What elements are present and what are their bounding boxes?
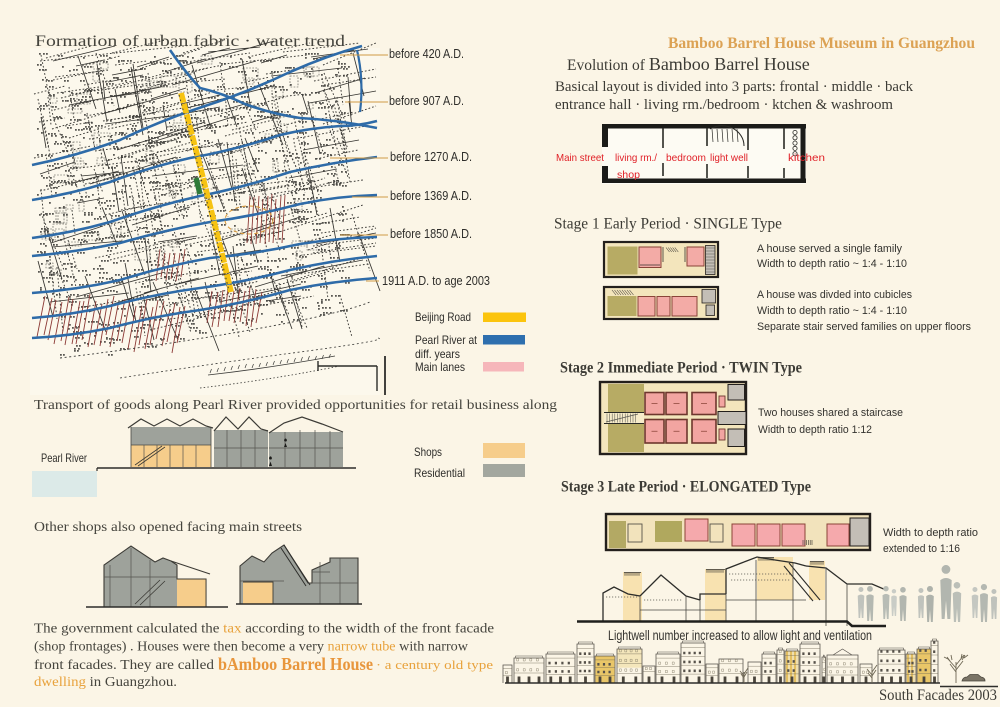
svg-text:Main lanes: Main lanes bbox=[415, 360, 465, 374]
svg-text:Width to depth ratio ~ 1:4 - 1: Width to depth ratio ~ 1:4 - 1:10 bbox=[757, 305, 907, 317]
svg-text:living rm./: living rm./ bbox=[615, 152, 657, 164]
svg-text:Transport of goods along Pearl: Transport of goods along Pearl River pro… bbox=[34, 398, 557, 413]
svg-text:Bamboo Barrel House Museum in: Bamboo Barrel House Museum in Guangzhou bbox=[668, 35, 975, 52]
svg-text:A house was divded into cubicl: A house was divded into cubicles bbox=[757, 289, 912, 301]
svg-text:· a century old type: · a century old type bbox=[376, 658, 494, 672]
svg-text:Other shops also opened facing: Other shops also opened facing main stre… bbox=[34, 520, 302, 535]
svg-text:Separate stair served families: Separate stair served families on upper … bbox=[757, 321, 971, 333]
svg-text:1911 A.D. to age 2003: 1911 A.D. to age 2003 bbox=[382, 273, 490, 288]
svg-text:Formation of urban fabric · wa: Formation of urban fabric · water trend bbox=[35, 33, 345, 50]
svg-text:Main street: Main street bbox=[556, 152, 604, 164]
svg-text:before 1850 A.D.: before 1850 A.D. bbox=[390, 226, 472, 241]
svg-text:Residential: Residential bbox=[414, 466, 465, 480]
svg-text:Evolution of Bamboo Barrel Hou: Evolution of Bamboo Barrel House bbox=[567, 54, 810, 74]
svg-text:bAmboo Barrel House: bAmboo Barrel House bbox=[218, 654, 373, 674]
svg-text:A house served a single famil: A house served a single family bbox=[757, 243, 903, 255]
svg-text:before 907 A.D.: before 907 A.D. bbox=[389, 93, 464, 108]
svg-text:extended to 1:16: extended to 1:16 bbox=[883, 543, 960, 555]
svg-text:light well: light well bbox=[710, 152, 748, 164]
svg-text:shop: shop bbox=[617, 169, 640, 181]
svg-text:dwelling in Guangzhou.: dwelling in Guangzhou. bbox=[34, 675, 177, 690]
svg-text:Shops: Shops bbox=[414, 445, 442, 459]
svg-text:kitchen: kitchen bbox=[788, 152, 825, 164]
svg-text:The government calculated the: The government calculated the tax accord… bbox=[34, 622, 494, 637]
svg-text:Two houses shared a staircase: Two houses shared a staircase bbox=[758, 407, 903, 419]
svg-text:diff. years: diff. years bbox=[415, 347, 460, 361]
svg-text:Pearl River at: Pearl River at bbox=[415, 333, 478, 347]
svg-text:before 420 A.D.: before 420 A.D. bbox=[389, 46, 464, 61]
svg-text:Width to depth ratio 1:12: Width to depth ratio 1:12 bbox=[758, 424, 872, 436]
svg-text:(shop frontages) . Houses were: (shop frontages) . Houses were then beco… bbox=[34, 640, 469, 655]
svg-text:Width to depth ratio ~ 1:4 - 1: Width to depth ratio ~ 1:4 - 1:10 bbox=[757, 258, 907, 270]
svg-text:Width to depth ratio: Width to depth ratio bbox=[883, 527, 978, 539]
svg-text:Lightwell number increased to: Lightwell number increased to allow ligh… bbox=[608, 628, 872, 643]
svg-text:front facades. They are called: front facades. They are called bbox=[34, 658, 214, 673]
svg-text:Stage 3 Late Period · ELONGATE: Stage 3 Late Period · ELONGATED Type bbox=[561, 479, 811, 496]
svg-text:before 1270 A.D.: before 1270 A.D. bbox=[390, 149, 472, 164]
svg-text:Stage 2 Immediate Period · TWI: Stage 2 Immediate Period · TWIN Type bbox=[560, 360, 802, 377]
svg-text:Beijing Road: Beijing Road bbox=[415, 310, 471, 324]
svg-text:Pearl River: Pearl River bbox=[41, 451, 87, 465]
svg-text:Stage 1 Early Period · SINGLE: Stage 1 Early Period · SINGLE Type bbox=[554, 216, 782, 233]
svg-text:South Facades 2003: South Facades 2003 bbox=[879, 687, 997, 704]
svg-text:bedroom: bedroom bbox=[666, 152, 706, 164]
svg-text:Basical layout is divided into: Basical layout is divided into 3 parts: … bbox=[555, 79, 913, 95]
svg-text:entrance hall · living rm./be: entrance hall · living rm./bedroom · ktc… bbox=[555, 97, 893, 113]
svg-text:before 1369 A.D.: before 1369 A.D. bbox=[390, 188, 472, 203]
